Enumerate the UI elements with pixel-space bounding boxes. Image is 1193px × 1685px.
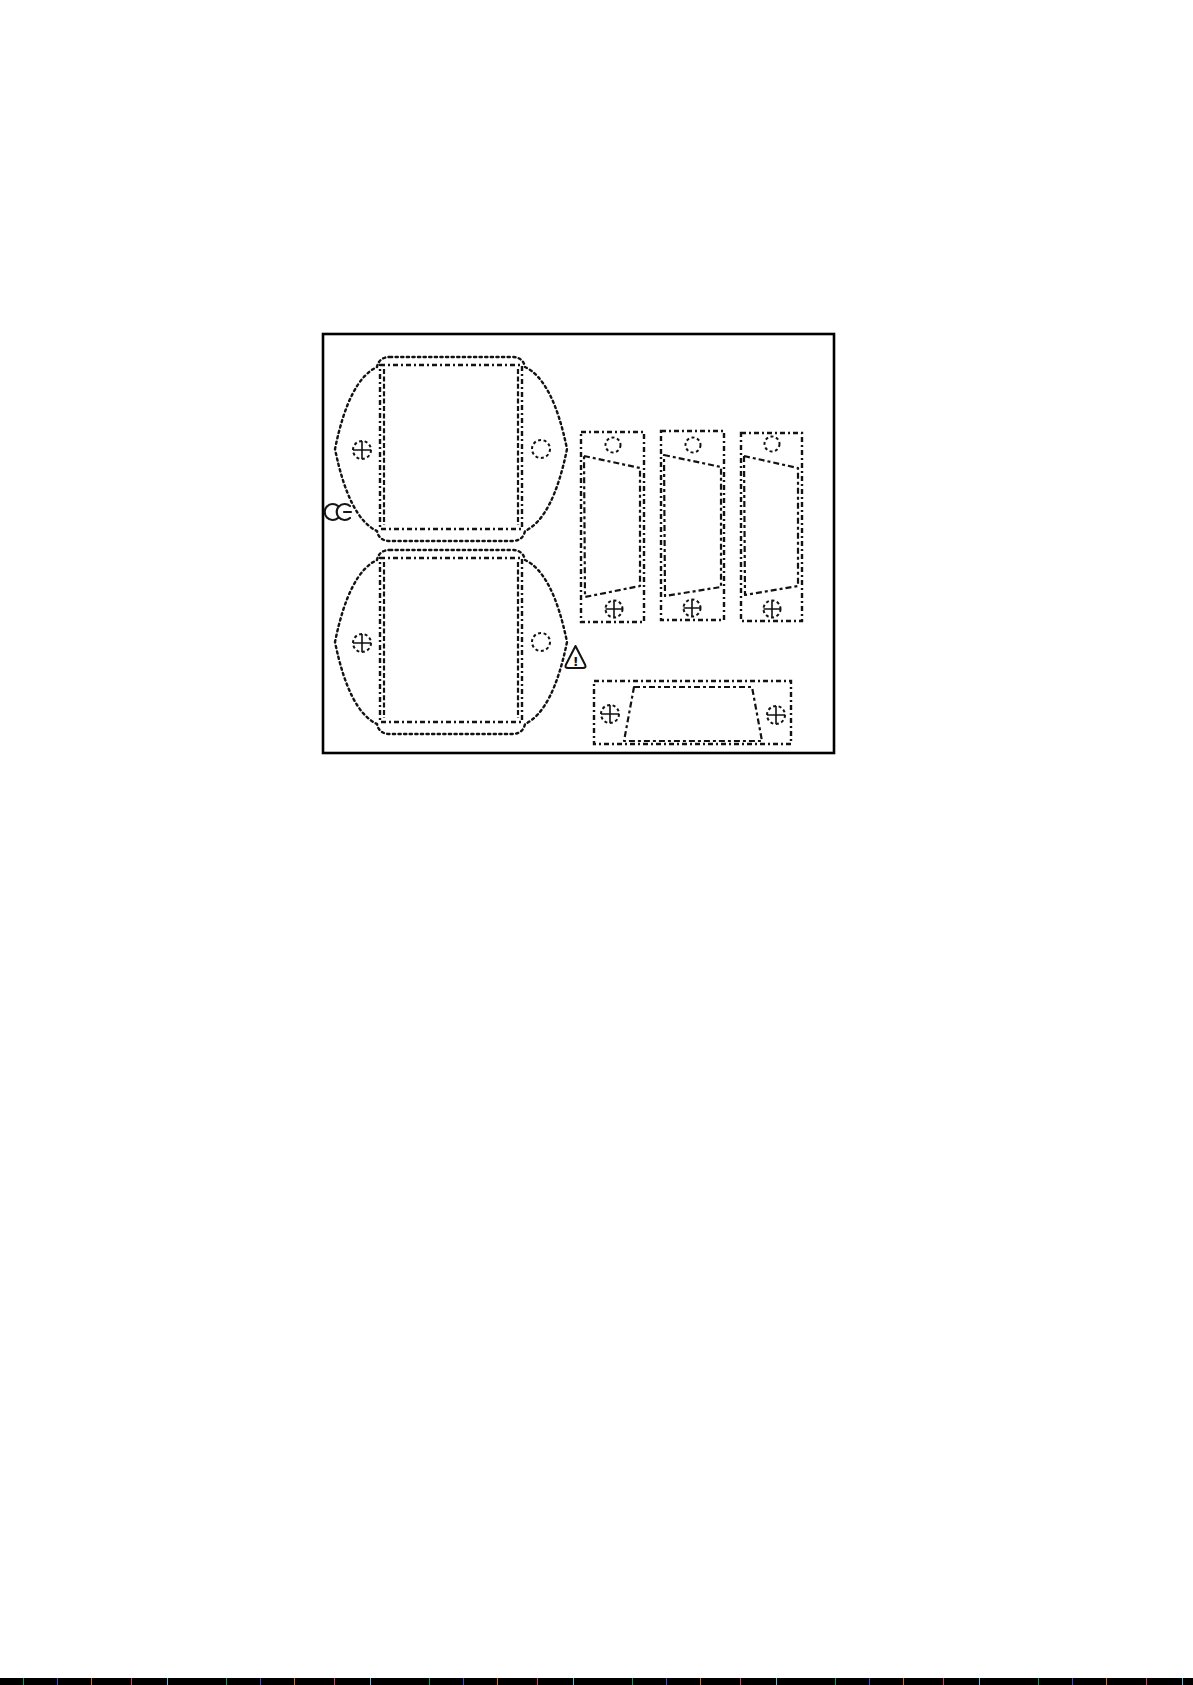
- figure-border-box: [323, 334, 834, 753]
- figure-canvas: !: [0, 0, 1193, 1685]
- strip-rect: [581, 432, 644, 622]
- screw-hole-icon: [353, 441, 371, 459]
- gasket-center-rect: [380, 558, 522, 722]
- round-hole-icon: [606, 438, 621, 453]
- strip-rect: [661, 431, 724, 620]
- screw-hole-icon: [601, 705, 619, 723]
- strip-template-1: [581, 432, 644, 622]
- strip-rect: [741, 433, 802, 621]
- scan-noise-line: [0, 1678, 1193, 1685]
- gasket-template-bottom: [335, 550, 567, 734]
- screw-hole-icon: [767, 706, 785, 724]
- gasket-template-top: [335, 357, 567, 541]
- warning-triangle-icon: !: [565, 646, 585, 669]
- warning-exclamation: !: [573, 654, 579, 669]
- round-hole-icon: [686, 438, 701, 453]
- screw-hole-icon: [606, 601, 623, 618]
- rect-border-density: [384, 562, 518, 718]
- strip-trapezoid: [584, 456, 640, 597]
- screw-hole-icon: [764, 601, 781, 618]
- strip-template-horizontal: [594, 681, 791, 744]
- rect-border-density: [384, 369, 518, 525]
- strip-trapezoid: [744, 456, 798, 595]
- round-hole-icon: [532, 633, 550, 651]
- screw-hole-icon: [353, 634, 371, 652]
- ce-mark-icon: [325, 504, 351, 520]
- round-hole-icon: [532, 440, 550, 458]
- gasket-center-rect: [380, 365, 522, 529]
- strip-trapezoid: [664, 455, 721, 596]
- screw-hole-icon: [684, 600, 701, 617]
- strip-template-2: [661, 431, 724, 620]
- strip-trapezoid: [624, 687, 762, 741]
- round-hole-icon: [765, 437, 780, 452]
- scanned-page: !: [0, 0, 1193, 1685]
- strip-template-3: [741, 433, 802, 621]
